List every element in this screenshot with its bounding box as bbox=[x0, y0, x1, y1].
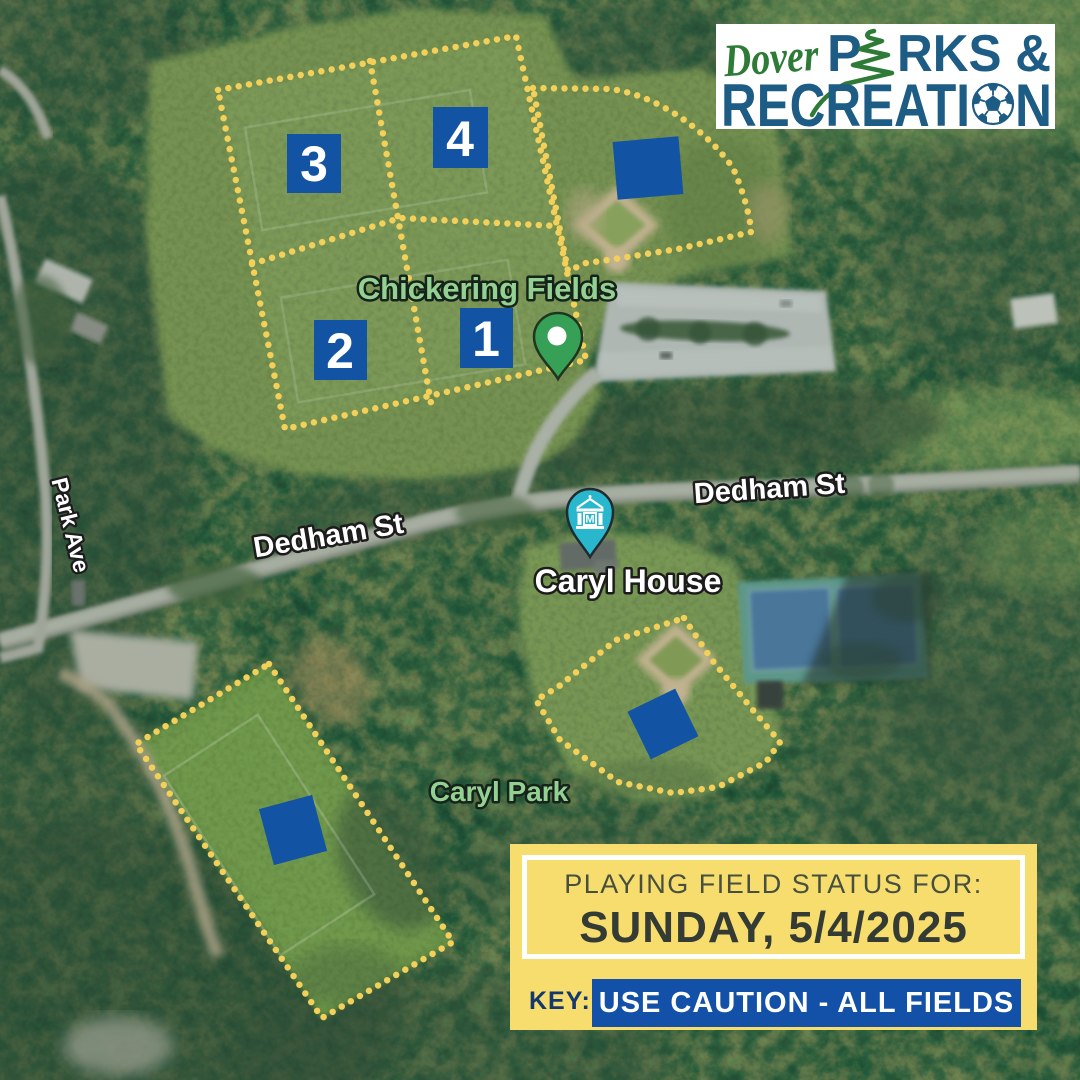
svg-text:Caryl Park: Caryl Park bbox=[430, 776, 569, 807]
svg-text:M: M bbox=[585, 514, 594, 526]
svg-text:2: 2 bbox=[326, 323, 354, 379]
svg-text:Chickering Fields: Chickering Fields bbox=[358, 271, 616, 306]
svg-text:1: 1 bbox=[472, 311, 500, 367]
svg-text:RECREATI: RECREATI bbox=[721, 72, 970, 129]
svg-text:4: 4 bbox=[446, 111, 474, 167]
svg-text:N: N bbox=[1015, 72, 1052, 129]
svg-text:3: 3 bbox=[300, 136, 328, 192]
svg-text:Caryl House: Caryl House bbox=[535, 563, 722, 599]
